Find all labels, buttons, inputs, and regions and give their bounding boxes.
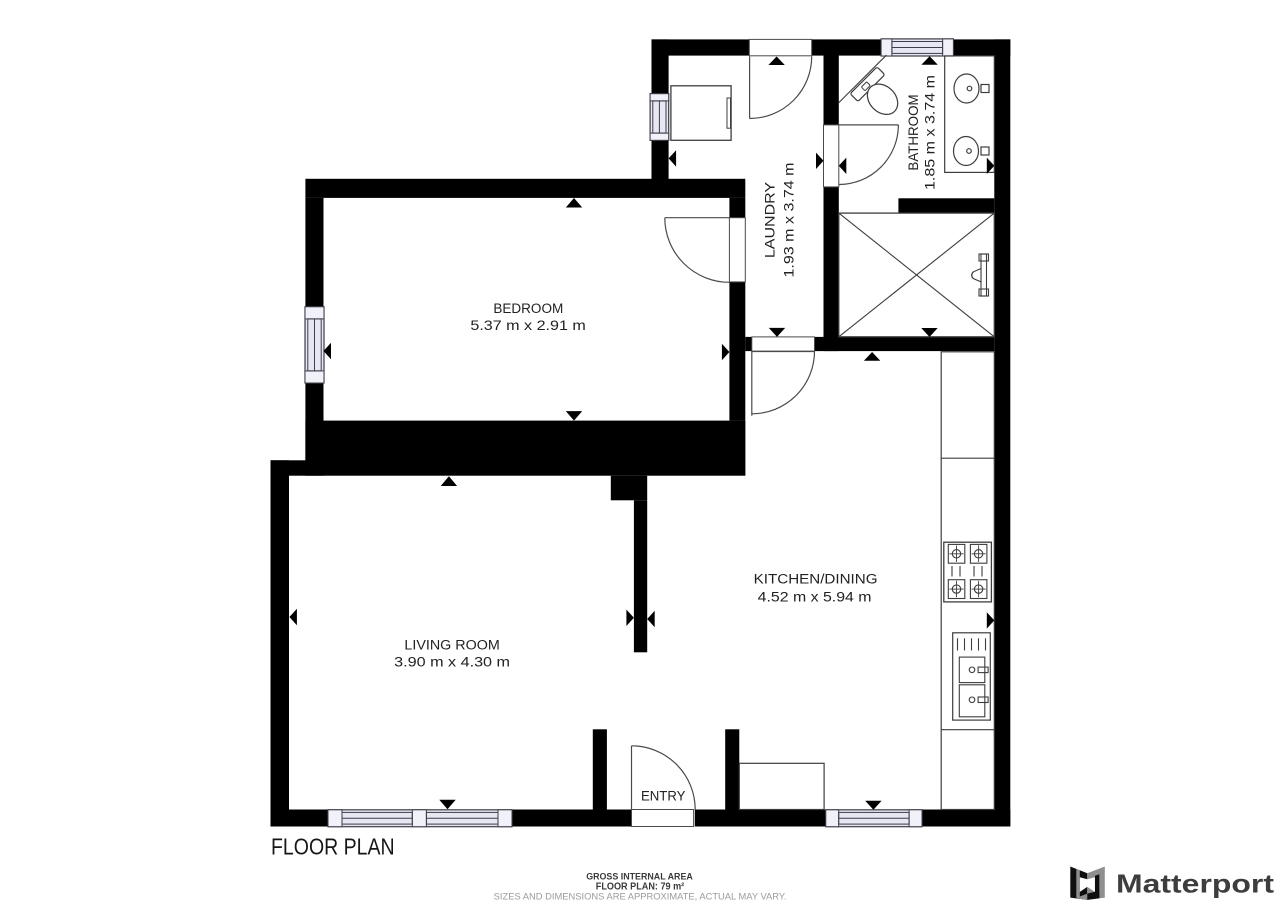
svg-text:LIVING ROOM: LIVING ROOM (404, 638, 499, 653)
svg-text:4.52 m x 5.94 m: 4.52 m x 5.94 m (758, 590, 872, 605)
svg-text:ENTRY: ENTRY (641, 789, 686, 804)
svg-text:3.90 m x 4.30 m: 3.90 m x 4.30 m (394, 654, 510, 669)
svg-text:Matterport: Matterport (1116, 868, 1274, 898)
svg-text:BEDROOM: BEDROOM (493, 301, 563, 316)
svg-text:5.37 m x 2.91 m: 5.37 m x 2.91 m (470, 318, 585, 333)
svg-text:FLOOR PLAN: FLOOR PLAN (271, 833, 395, 859)
svg-text:SIZES AND DIMENSIONS ARE APPRO: SIZES AND DIMENSIONS ARE APPROXIMATE, AC… (494, 891, 787, 901)
svg-text:KITCHEN/DINING: KITCHEN/DINING (754, 572, 878, 587)
